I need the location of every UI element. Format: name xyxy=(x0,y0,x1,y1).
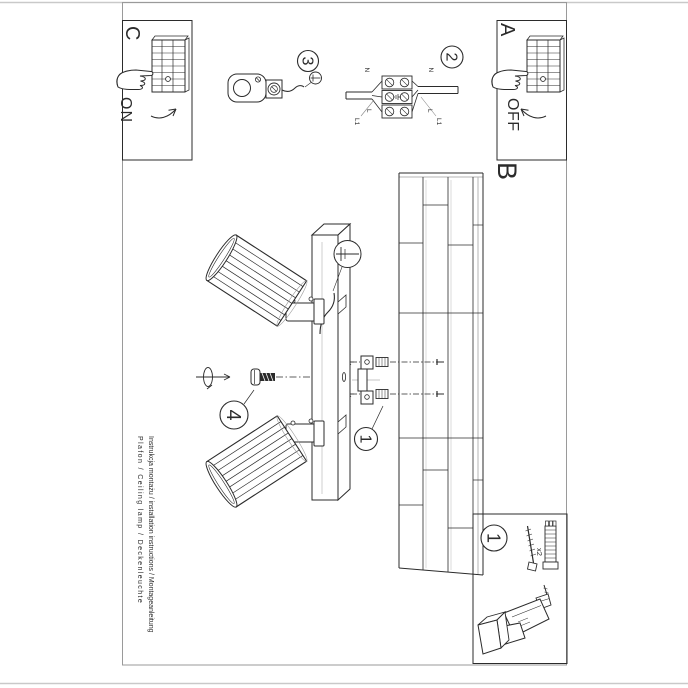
bolt-icon xyxy=(251,369,275,385)
fixing-row-upper xyxy=(340,357,444,367)
screwdriver-icon xyxy=(305,72,322,87)
footer-line-1: Instrukcja montażu / installation instru… xyxy=(147,436,154,633)
step1-number-box: 1 xyxy=(484,533,504,543)
turn-on-arrow-icon xyxy=(151,109,176,118)
section-box-a: A OFF xyxy=(492,21,567,161)
wire-label-l1-right: L1 xyxy=(435,118,442,126)
pressing-hand-icon xyxy=(492,70,528,90)
fixing-row-lower xyxy=(340,389,444,399)
step1-number-main: 1 xyxy=(356,435,373,444)
wire xyxy=(282,86,304,92)
step4-bolt-drawing: 4 xyxy=(196,368,311,430)
cable-left xyxy=(346,81,382,116)
light-switch-icon xyxy=(527,36,564,92)
turn-off-arrow-icon xyxy=(521,109,546,118)
mounting-bracket-assembly: 1 xyxy=(340,356,444,451)
section-a-label: A xyxy=(496,23,518,37)
section-c-label: C xyxy=(121,26,143,40)
wire-label-l-left: L xyxy=(365,109,372,113)
ceiling-planks xyxy=(399,173,483,575)
drill-icon xyxy=(478,585,551,654)
step4-number: 4 xyxy=(222,409,244,420)
rotation-arrow-icon xyxy=(196,368,230,390)
lamp-drawing xyxy=(202,224,361,510)
pressing-hand-icon xyxy=(117,70,153,90)
section-b-label: B xyxy=(492,162,522,180)
cable-right xyxy=(412,81,458,116)
plank-joints xyxy=(399,205,483,528)
hardware-qty-label: x2 xyxy=(535,548,544,556)
wire-label-l-right: L xyxy=(426,109,433,113)
light-switch-icon xyxy=(152,36,189,92)
wire-label-n-right: N xyxy=(427,68,434,73)
wall-plug-icon xyxy=(543,521,558,569)
step3-terminal-drawing: 3 xyxy=(228,51,322,103)
title-block: Instrukcja montażu / installation instru… xyxy=(136,436,154,633)
step3-number: 3 xyxy=(298,57,315,66)
off-label: OFF xyxy=(504,98,521,132)
footer-line-2: Plafon / Ceiling lamp / Deckenleuchte xyxy=(136,436,143,604)
instruction-sheet: C ON A OFF B 3 xyxy=(0,0,688,688)
wire-label-n-left: N xyxy=(363,68,370,73)
on-label: ON xyxy=(117,97,134,123)
hardware-box: 1 x2 xyxy=(473,514,567,664)
step2-number: 2 xyxy=(442,53,459,62)
wire-label-l1-left: L1 xyxy=(353,118,360,126)
section-box-c: C ON xyxy=(117,21,192,161)
step2-wiring-diagram: N N L L L1 L1 2 xyxy=(346,46,463,126)
